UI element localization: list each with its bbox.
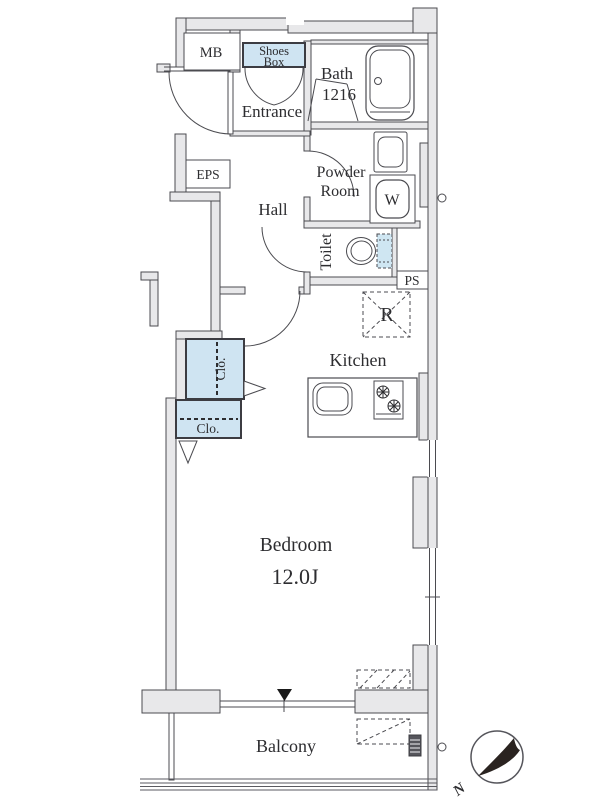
label-washer: W	[384, 192, 400, 209]
label-closet-lower: Clo.	[197, 421, 220, 436]
bathtub-icon	[366, 46, 414, 120]
label-mb: MB	[200, 45, 223, 61]
washbasin-icon	[374, 132, 407, 172]
drain-box	[409, 735, 421, 756]
label-closet-upper: Clo.	[213, 358, 228, 381]
bedroom-side-window	[425, 548, 440, 645]
label-ps: PS	[404, 273, 419, 288]
label-eps: EPS	[196, 167, 219, 182]
label-shoes-box-2: Box	[264, 55, 286, 69]
entry-direction-triangle-icon	[277, 689, 292, 701]
bedroom-door	[245, 291, 300, 346]
pipe-marker-icon	[438, 743, 446, 751]
compass-icon: N	[450, 731, 523, 800]
toilet-icon	[347, 234, 393, 268]
label-bedroom: Bedroom	[260, 535, 333, 556]
door-swing-triangle-icon	[244, 381, 265, 396]
kitchen-side-window	[428, 440, 438, 477]
pipe-marker-icon	[438, 194, 446, 202]
shoes-box-doors	[245, 67, 303, 105]
label-powder-2: Room	[320, 183, 360, 200]
stove-icon	[374, 381, 403, 419]
compass-north-label: N	[450, 779, 470, 800]
label-hall: Hall	[258, 200, 288, 219]
service-space-dashed-box	[357, 670, 410, 688]
label-fridge: R	[380, 304, 394, 326]
floorplan-drawing: N MB Shoes Box Bath 1216 Entrance Powder…	[0, 0, 600, 800]
toilet-door	[262, 227, 307, 272]
label-bath-size: 1216	[322, 85, 356, 104]
label-bedroom-size: 12.0J	[271, 564, 319, 589]
label-balcony: Balcony	[256, 736, 316, 756]
entry-door	[169, 72, 233, 134]
label-bath: Bath	[321, 64, 354, 83]
kitchen-counter	[308, 378, 417, 437]
balcony-window	[220, 696, 355, 712]
label-entrance: Entrance	[242, 102, 302, 121]
floorplan-page: N MB Shoes Box Bath 1216 Entrance Powder…	[0, 0, 600, 800]
door-swing-triangle-icon	[179, 441, 197, 463]
label-toilet: Toilet	[318, 233, 335, 271]
label-kitchen: Kitchen	[330, 350, 387, 370]
sink-icon	[313, 383, 352, 415]
label-powder-1: Powder	[317, 164, 367, 181]
